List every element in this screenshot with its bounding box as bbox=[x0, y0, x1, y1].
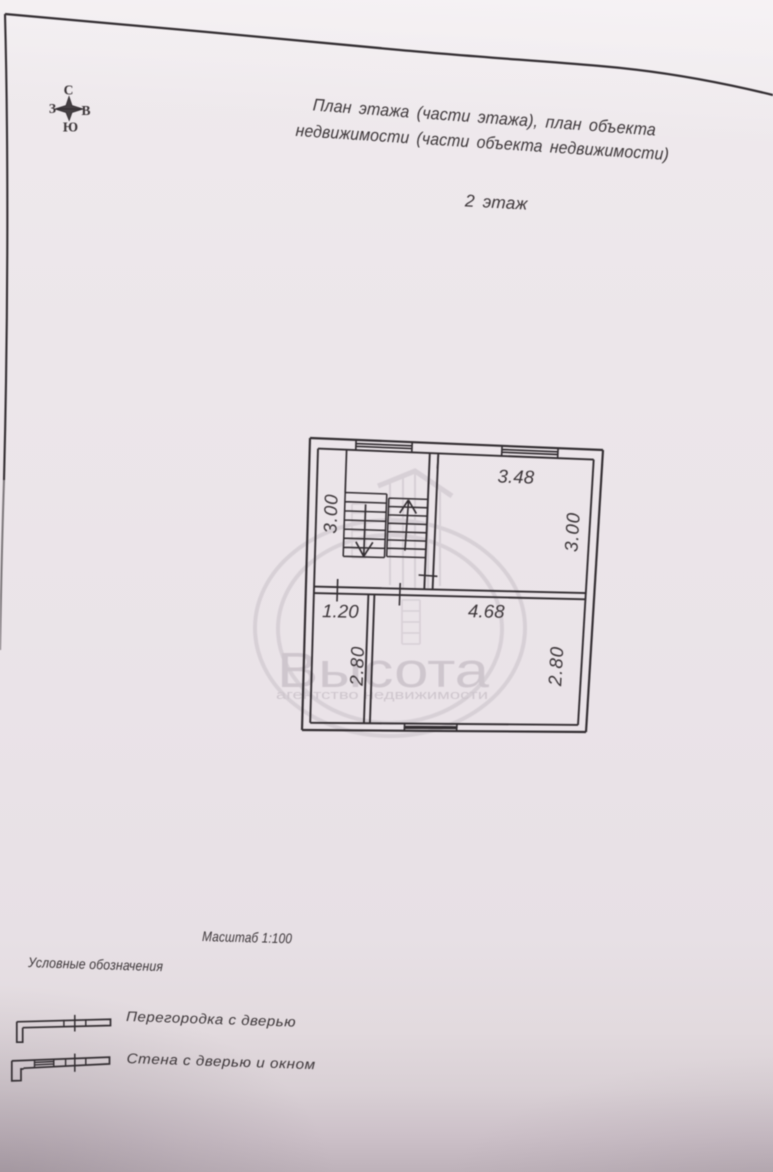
svg-text:1.20: 1.20 bbox=[322, 600, 360, 622]
svg-text:З: З bbox=[49, 101, 56, 116]
svg-text:3.48: 3.48 bbox=[497, 465, 535, 487]
svg-text:2 этаж: 2 этаж bbox=[464, 190, 529, 213]
svg-text:В: В bbox=[81, 103, 90, 118]
svg-text:2.80: 2.80 bbox=[346, 645, 368, 687]
svg-text:4.68: 4.68 bbox=[468, 600, 506, 622]
svg-text:агентство недвижимости: агентство недвижимости bbox=[276, 688, 488, 702]
svg-text:Масштаб 1:100: Масштаб 1:100 bbox=[202, 928, 292, 946]
svg-text:С: С bbox=[64, 83, 74, 98]
svg-text:2.80: 2.80 bbox=[544, 645, 567, 687]
svg-text:Ю: Ю bbox=[63, 120, 78, 135]
svg-text:Условные обозначения: Условные обозначения bbox=[27, 954, 164, 974]
svg-text:3.00: 3.00 bbox=[319, 493, 341, 534]
svg-text:Стена с дверью и окном: Стена с дверью и окном bbox=[126, 1050, 315, 1072]
svg-text:Перегородка с дверью: Перегородка с дверью bbox=[126, 1008, 296, 1030]
svg-text:3.00: 3.00 bbox=[560, 511, 583, 552]
